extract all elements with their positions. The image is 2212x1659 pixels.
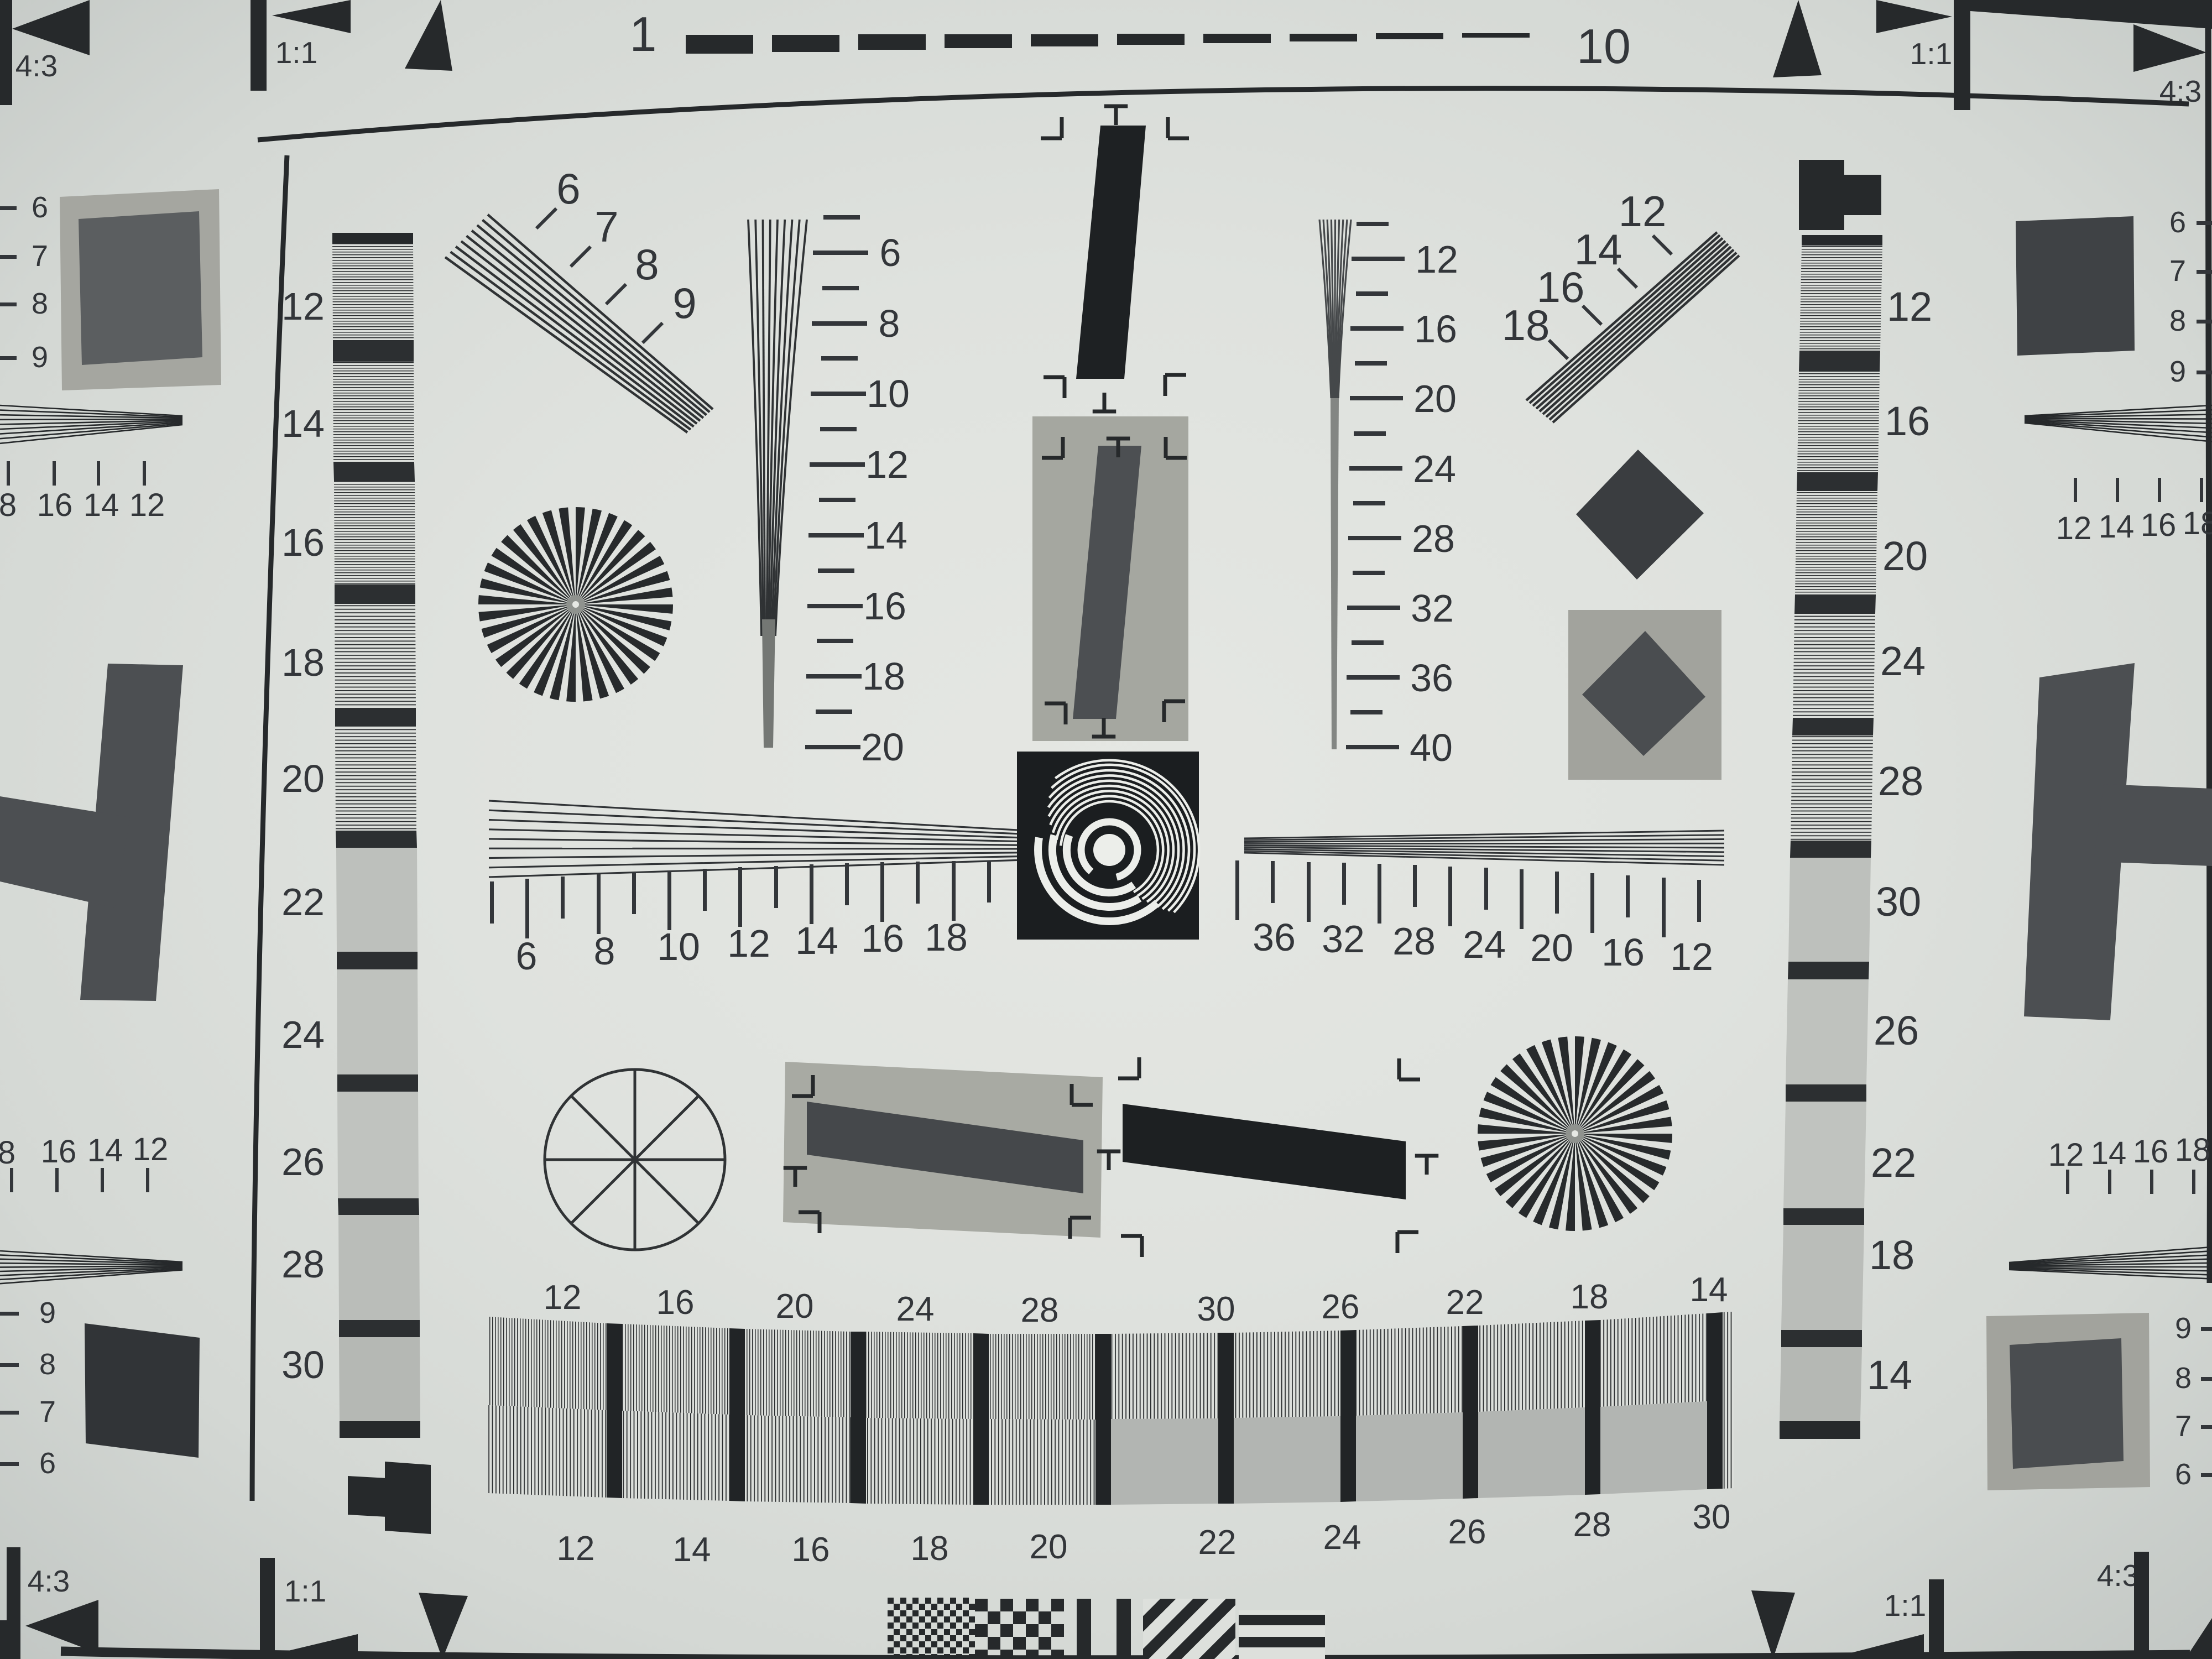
svg-text:18: 18 (281, 641, 325, 684)
svg-text:8: 8 (0, 1135, 15, 1171)
svg-text:9: 9 (2169, 355, 2186, 388)
svg-text:20: 20 (281, 757, 325, 800)
svg-text:16: 16 (792, 1531, 830, 1569)
svg-text:26: 26 (1874, 1008, 1919, 1053)
svg-text:12: 12 (557, 1530, 595, 1568)
svg-text:14: 14 (673, 1531, 711, 1569)
svg-text:8: 8 (39, 1348, 56, 1381)
svg-text:24: 24 (1463, 923, 1506, 966)
svg-text:16: 16 (1601, 931, 1645, 974)
svg-text:20: 20 (1030, 1528, 1068, 1566)
svg-text:8: 8 (2175, 1361, 2192, 1395)
svg-text:14: 14 (1690, 1271, 1728, 1309)
svg-text:1:1: 1:1 (284, 1574, 326, 1608)
svg-text:14: 14 (864, 514, 907, 557)
svg-text:32: 32 (1411, 587, 1454, 630)
svg-text:16: 16 (861, 917, 904, 960)
svg-text:16: 16 (2133, 1134, 2169, 1170)
svg-text:4:3: 4:3 (2097, 1558, 2139, 1593)
svg-text:22: 22 (1198, 1524, 1237, 1562)
svg-text:16: 16 (656, 1284, 695, 1322)
svg-text:6: 6 (556, 164, 580, 213)
svg-text:9: 9 (32, 341, 48, 374)
svg-text:1:1: 1:1 (1910, 36, 1952, 71)
svg-text:12: 12 (1415, 238, 1458, 281)
svg-text:16: 16 (37, 487, 73, 523)
svg-text:24: 24 (281, 1013, 325, 1056)
svg-text:8: 8 (32, 287, 48, 320)
svg-text:28: 28 (1021, 1291, 1059, 1329)
svg-text:8: 8 (594, 930, 615, 973)
svg-text:28: 28 (1573, 1506, 1611, 1544)
svg-text:14: 14 (84, 487, 119, 523)
svg-text:24: 24 (896, 1290, 935, 1328)
svg-text:9: 9 (39, 1296, 56, 1329)
svg-text:1:1: 1:1 (275, 35, 317, 70)
svg-text:24: 24 (1323, 1519, 1361, 1557)
svg-text:6: 6 (32, 191, 48, 224)
svg-text:14: 14 (1867, 1352, 1912, 1398)
svg-text:14: 14 (87, 1133, 123, 1168)
svg-text:4:3: 4:3 (15, 49, 58, 83)
svg-text:26: 26 (281, 1140, 325, 1183)
svg-text:12: 12 (133, 1131, 169, 1167)
svg-text:14: 14 (281, 402, 325, 445)
svg-text:7: 7 (2169, 254, 2186, 288)
svg-text:1:1: 1:1 (1884, 1588, 1926, 1623)
svg-text:6: 6 (39, 1447, 56, 1480)
svg-text:12: 12 (281, 285, 325, 328)
svg-text:7: 7 (2175, 1410, 2192, 1443)
svg-text:8: 8 (879, 302, 900, 345)
svg-text:32: 32 (1322, 917, 1365, 961)
svg-text:18: 18 (2183, 505, 2212, 541)
svg-text:40: 40 (1410, 726, 1453, 769)
svg-text:4:3: 4:3 (28, 1564, 70, 1598)
svg-text:12: 12 (727, 922, 770, 965)
svg-text:28: 28 (1412, 517, 1455, 560)
svg-text:6: 6 (516, 935, 538, 978)
svg-text:20: 20 (1413, 377, 1457, 420)
svg-text:1: 1 (630, 7, 657, 61)
svg-text:28: 28 (281, 1243, 325, 1286)
svg-text:18: 18 (1502, 301, 1550, 349)
svg-text:18: 18 (2175, 1132, 2211, 1168)
svg-text:22: 22 (1446, 1284, 1484, 1322)
svg-text:30: 30 (1876, 879, 1921, 925)
svg-text:30: 30 (281, 1343, 325, 1386)
svg-text:18: 18 (862, 655, 905, 698)
svg-text:24: 24 (1413, 447, 1456, 491)
svg-text:8: 8 (2169, 304, 2186, 337)
svg-text:16: 16 (863, 585, 906, 628)
svg-text:12: 12 (1619, 187, 1667, 236)
svg-text:30: 30 (1693, 1498, 1731, 1536)
svg-text:20: 20 (1530, 926, 1573, 969)
svg-text:16: 16 (1414, 307, 1457, 351)
svg-text:6: 6 (2175, 1458, 2192, 1491)
svg-text:16: 16 (281, 521, 325, 564)
svg-text:14: 14 (2091, 1135, 2127, 1171)
svg-text:12: 12 (544, 1279, 582, 1317)
svg-text:14: 14 (2099, 509, 2135, 545)
svg-text:30: 30 (1197, 1290, 1235, 1328)
svg-text:36: 36 (1253, 916, 1296, 959)
svg-text:7: 7 (32, 239, 48, 273)
svg-text:28: 28 (1392, 920, 1436, 963)
svg-text:26: 26 (1448, 1513, 1486, 1551)
svg-text:10: 10 (657, 925, 700, 968)
svg-text:12: 12 (2056, 510, 2092, 546)
svg-text:7: 7 (594, 202, 618, 251)
svg-text:10: 10 (1577, 19, 1631, 74)
svg-text:6: 6 (880, 231, 901, 274)
svg-text:12: 12 (865, 443, 909, 486)
svg-text:12: 12 (1670, 935, 1713, 978)
svg-text:18: 18 (1869, 1232, 1914, 1278)
svg-text:22: 22 (1871, 1140, 1916, 1186)
svg-text:9: 9 (2175, 1312, 2192, 1345)
svg-text:8: 8 (635, 240, 659, 289)
svg-text:9: 9 (672, 279, 696, 327)
svg-text:12: 12 (1887, 284, 1932, 330)
svg-text:36: 36 (1410, 656, 1453, 700)
svg-text:8: 8 (0, 487, 17, 523)
svg-text:12: 12 (129, 487, 165, 523)
svg-text:20: 20 (1882, 533, 1928, 579)
svg-text:14: 14 (795, 919, 838, 962)
svg-text:18: 18 (911, 1530, 949, 1568)
svg-text:18: 18 (925, 916, 968, 959)
svg-text:10: 10 (867, 372, 910, 415)
svg-text:16: 16 (1885, 398, 1930, 444)
svg-text:7: 7 (39, 1395, 56, 1428)
svg-text:22: 22 (281, 880, 325, 924)
svg-text:28: 28 (1878, 758, 1923, 804)
svg-text:6: 6 (2169, 206, 2186, 239)
svg-text:20: 20 (861, 726, 904, 769)
svg-text:26: 26 (1322, 1288, 1360, 1326)
svg-text:24: 24 (1880, 638, 1926, 684)
svg-text:20: 20 (776, 1287, 814, 1326)
svg-text:18: 18 (1571, 1278, 1609, 1316)
svg-text:16: 16 (41, 1134, 77, 1170)
svg-text:12: 12 (2048, 1137, 2084, 1173)
svg-text:16: 16 (2141, 507, 2177, 543)
